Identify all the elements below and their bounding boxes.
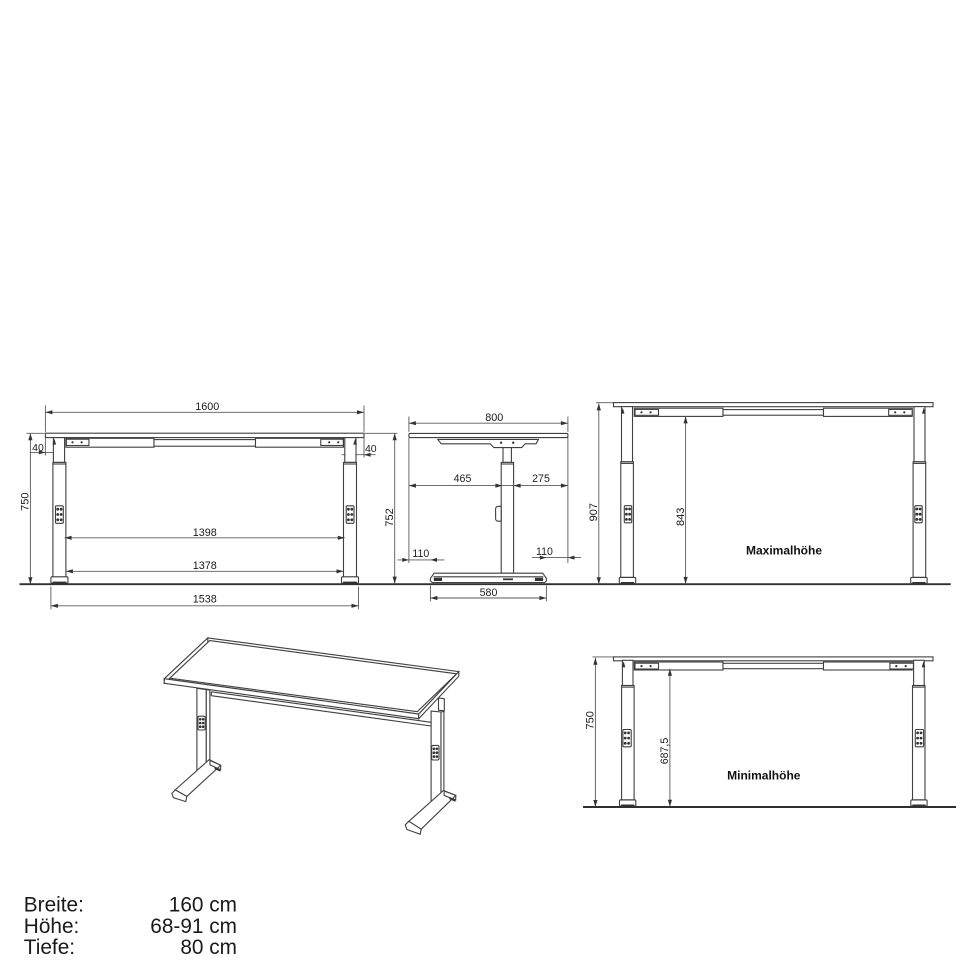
svg-text:580: 580 [480,587,498,599]
svg-text:80 cm: 80 cm [180,936,237,959]
svg-text:750: 750 [585,711,597,729]
svg-text:750: 750 [20,493,32,511]
svg-text:800: 800 [485,412,503,424]
svg-text:1538: 1538 [193,594,217,606]
svg-text:1600: 1600 [195,401,219,413]
svg-text:Breite:: Breite: [24,894,84,917]
svg-text:687,5: 687,5 [659,738,671,765]
svg-text:465: 465 [454,473,472,485]
svg-text:1378: 1378 [193,560,217,572]
svg-text:Minimalhöhe: Minimalhöhe [727,768,801,782]
svg-text:40: 40 [365,443,377,455]
svg-text:752: 752 [384,508,396,526]
svg-text:907: 907 [588,503,600,521]
svg-text:110: 110 [412,548,429,560]
svg-text:160 cm: 160 cm [169,894,237,917]
svg-text:275: 275 [532,473,550,485]
svg-text:Höhe:: Höhe: [24,915,80,938]
svg-text:110: 110 [536,546,553,558]
svg-text:Maximalhöhe: Maximalhöhe [746,544,822,558]
svg-text:843: 843 [675,508,687,526]
svg-text:Tiefe:: Tiefe: [24,936,75,959]
svg-text:1398: 1398 [193,527,217,539]
svg-text:68-91 cm: 68-91 cm [150,915,237,938]
